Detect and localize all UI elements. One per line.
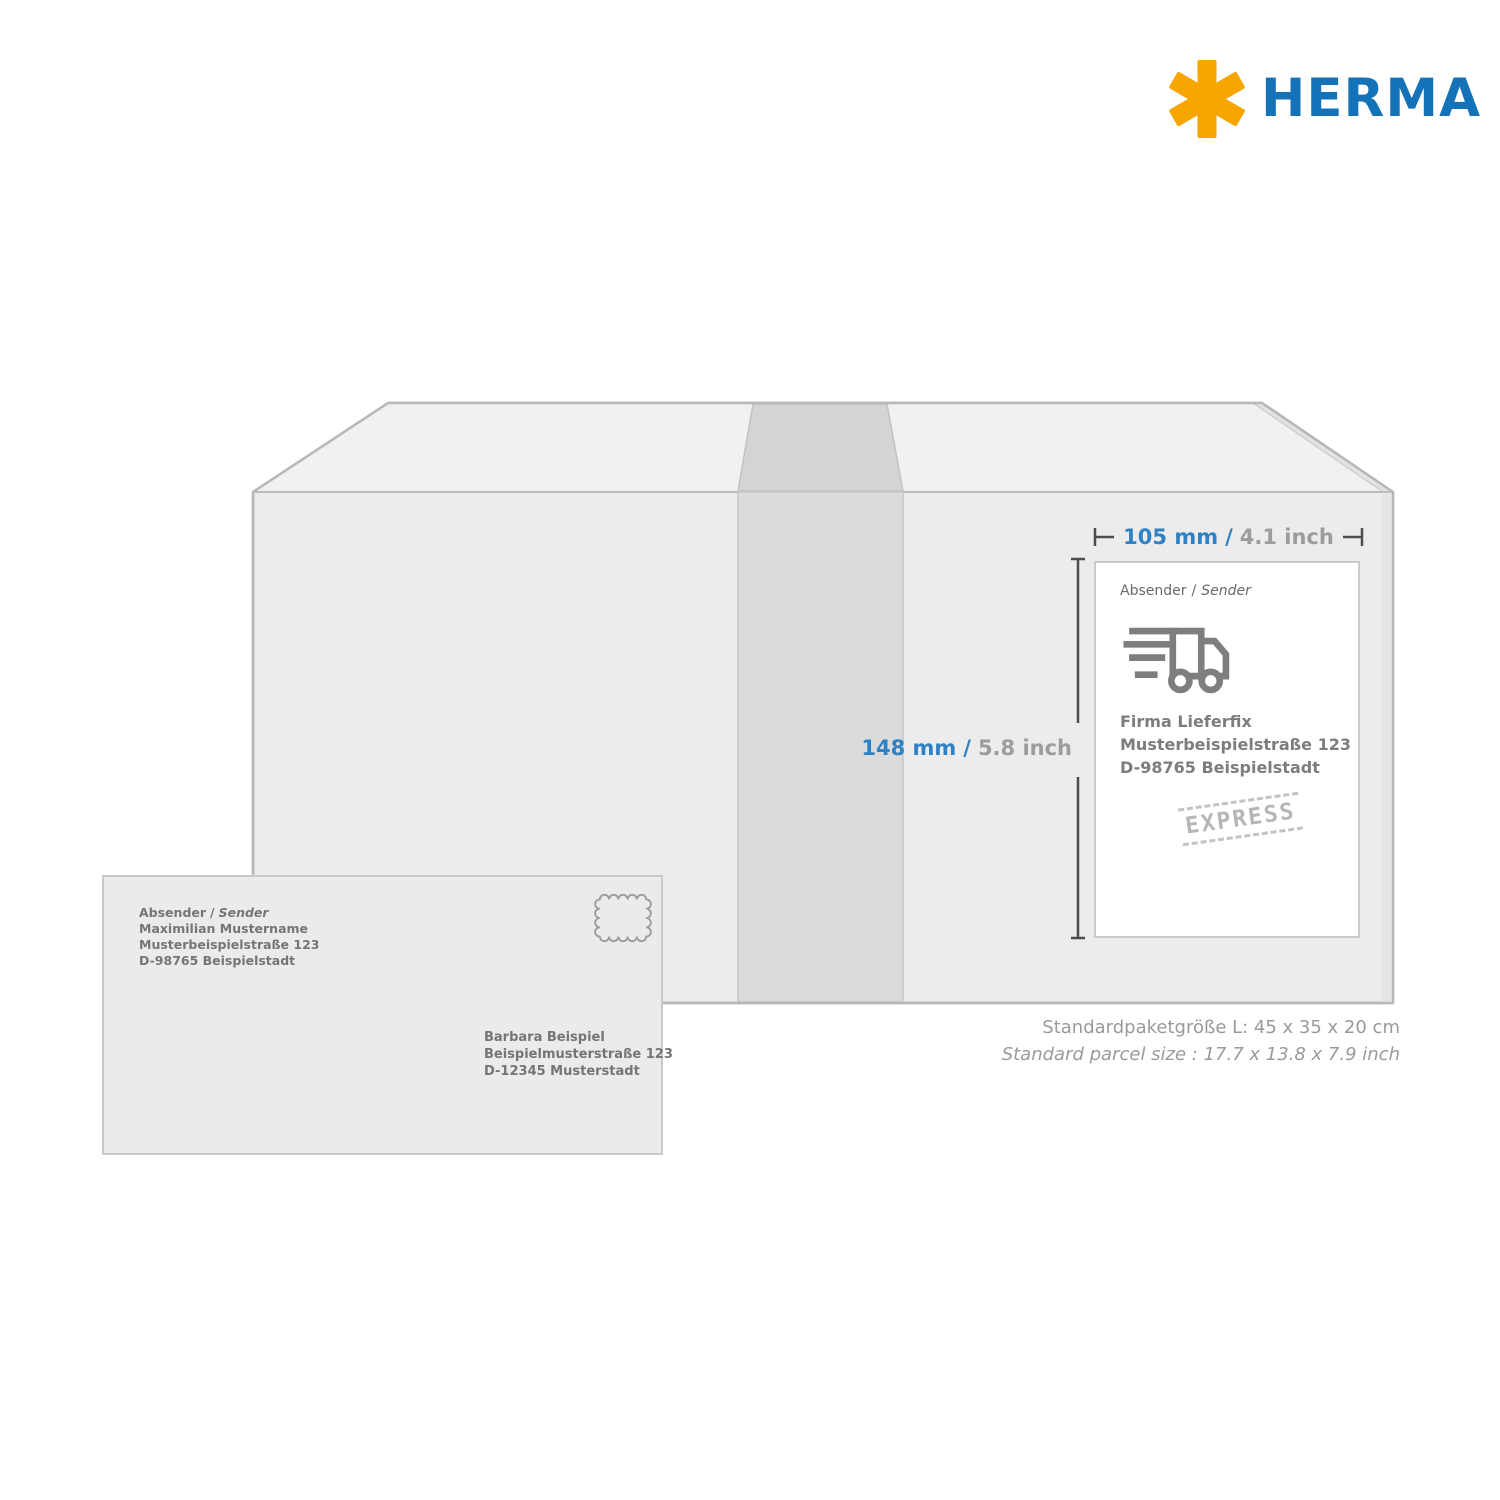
- width-slash: /: [1225, 525, 1233, 549]
- envelope-recipient-block: Barbara Beispiel Beispielmusterstraße 12…: [484, 1029, 673, 1080]
- height-dimension: 148 mm/5.8 inch: [840, 736, 1072, 760]
- envelope-caption-sep: /: [210, 905, 215, 920]
- envelope-caption-de: Absender: [139, 905, 206, 920]
- tape-top: [738, 404, 903, 491]
- envelope: Absender/Sender Maximilian Mustername Mu…: [102, 875, 663, 1155]
- parcel-size-note: Standardpaketgröße L: 45 x 35 x 20 cm St…: [1002, 1014, 1400, 1068]
- envelope-sender-line: Maximilian Mustername: [139, 921, 319, 937]
- label-address-line: Musterbeispielstraße 123: [1120, 733, 1337, 756]
- width-metric: 105 mm: [1123, 525, 1218, 549]
- shipping-label: Absender/Sender Firma Lieferfix Musterbe…: [1094, 561, 1360, 938]
- label-address-line: Firma Lieferfix: [1120, 710, 1337, 733]
- envelope-caption-en: Sender: [219, 905, 269, 920]
- label-caption-de: Absender: [1120, 583, 1187, 599]
- envelope-recipient-line: Beispielmusterstraße 123: [484, 1046, 673, 1063]
- label-caption-en: Sender: [1201, 583, 1251, 599]
- herma-logo: HERMA: [1168, 60, 1481, 138]
- express-stamp: EXPRESS: [1178, 792, 1303, 846]
- box-right-shade: [1381, 492, 1393, 1002]
- label-address-block: Firma Lieferfix Musterbeispielstraße 123…: [1120, 710, 1337, 779]
- label-sender-caption: Absender/Sender: [1120, 583, 1337, 599]
- label-address-line: D-98765 Beispielstadt: [1120, 756, 1337, 779]
- envelope-sender-line: D-98765 Beispielstadt: [139, 953, 319, 969]
- herma-asterisk-icon: [1168, 60, 1246, 138]
- page: HERMA 105 mm / 4.1 inch 148 mm/5.8 inch …: [0, 0, 1500, 1500]
- envelope-sender-caption: Absender/Sender: [139, 905, 319, 921]
- envelope-recipient-line: Barbara Beispiel: [484, 1029, 673, 1046]
- label-caption-sep: /: [1192, 583, 1197, 599]
- height-metric: 148 mm: [861, 736, 956, 760]
- parcel-size-metric: Standardpaketgröße L: 45 x 35 x 20 cm: [1002, 1014, 1400, 1041]
- width-imperial: 4.1 inch: [1240, 525, 1334, 549]
- height-imperial: 5.8 inch: [978, 736, 1072, 760]
- brand-name: HERMA: [1261, 60, 1481, 138]
- envelope-recipient-line: D-12345 Musterstadt: [484, 1063, 673, 1080]
- delivery-truck-icon: [1122, 623, 1234, 697]
- width-dimension: 105 mm / 4.1 inch: [1095, 523, 1362, 551]
- stamp-outline-icon: [594, 891, 652, 945]
- envelope-sender-line: Musterbeispielstraße 123: [139, 937, 319, 953]
- parcel-size-imperial: Standard parcel size : 17.7 x 13.8 x 7.9…: [1002, 1041, 1400, 1068]
- envelope-sender-block: Absender/Sender Maximilian Mustername Mu…: [139, 905, 319, 969]
- height-slash: /: [963, 736, 971, 760]
